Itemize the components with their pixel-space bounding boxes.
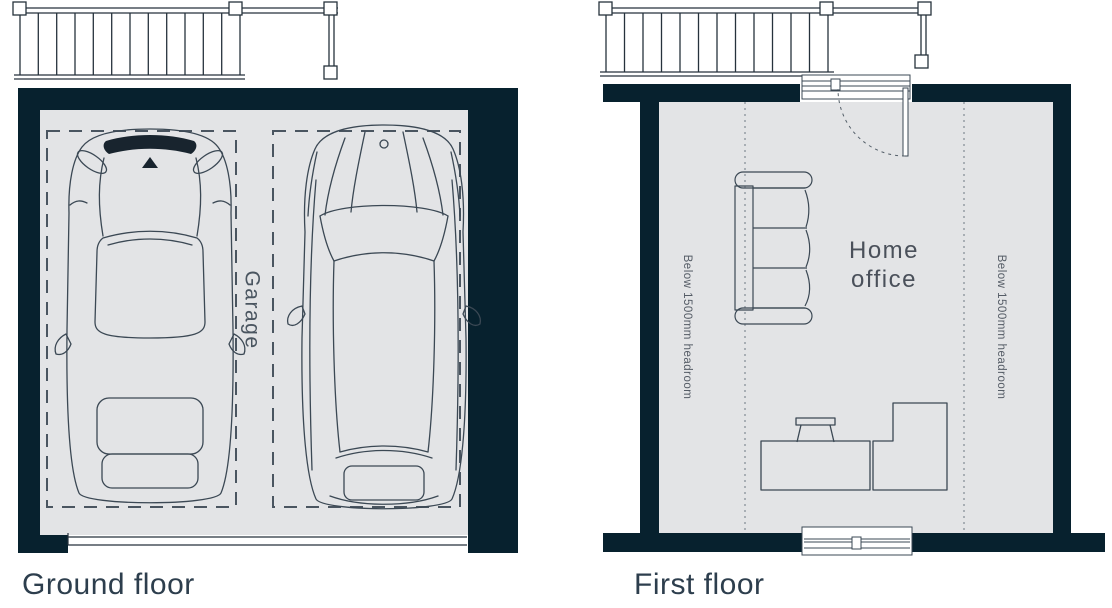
window: [802, 527, 912, 555]
home-office-label-line1: Home: [849, 237, 919, 264]
stair-post: [324, 66, 337, 79]
office-floor: [659, 102, 1053, 533]
headroom-label-right: Below 1500mm headroom: [995, 255, 1007, 400]
door-stop: [831, 79, 840, 90]
stair-post: [13, 2, 26, 15]
external-stairs-first: [599, 2, 931, 76]
stair-post: [820, 2, 833, 15]
stair-post: [915, 55, 928, 68]
first-floor-plan: Home office Below 1500mm headroom Below …: [599, 2, 1105, 555]
ground-floor-plan: Garage: [13, 2, 518, 553]
door-leaf: [903, 88, 908, 156]
stair-treads: [20, 13, 240, 75]
stair-post: [599, 2, 612, 15]
stair-post: [918, 2, 931, 15]
stair-post: [324, 2, 337, 15]
ground-floor-title: Ground floor: [22, 568, 195, 602]
stair-treads: [606, 13, 828, 72]
home-office-label-line2: office: [851, 266, 917, 293]
garage-label: Garage: [241, 270, 264, 349]
first-floor-title: First floor: [634, 568, 765, 602]
stair-post: [229, 2, 242, 15]
external-stairs-ground: [13, 2, 338, 79]
headroom-label-left: Below 1500mm headroom: [681, 255, 693, 400]
window-mullion: [852, 537, 861, 549]
floorplan-canvas: Garage: [0, 0, 1112, 608]
